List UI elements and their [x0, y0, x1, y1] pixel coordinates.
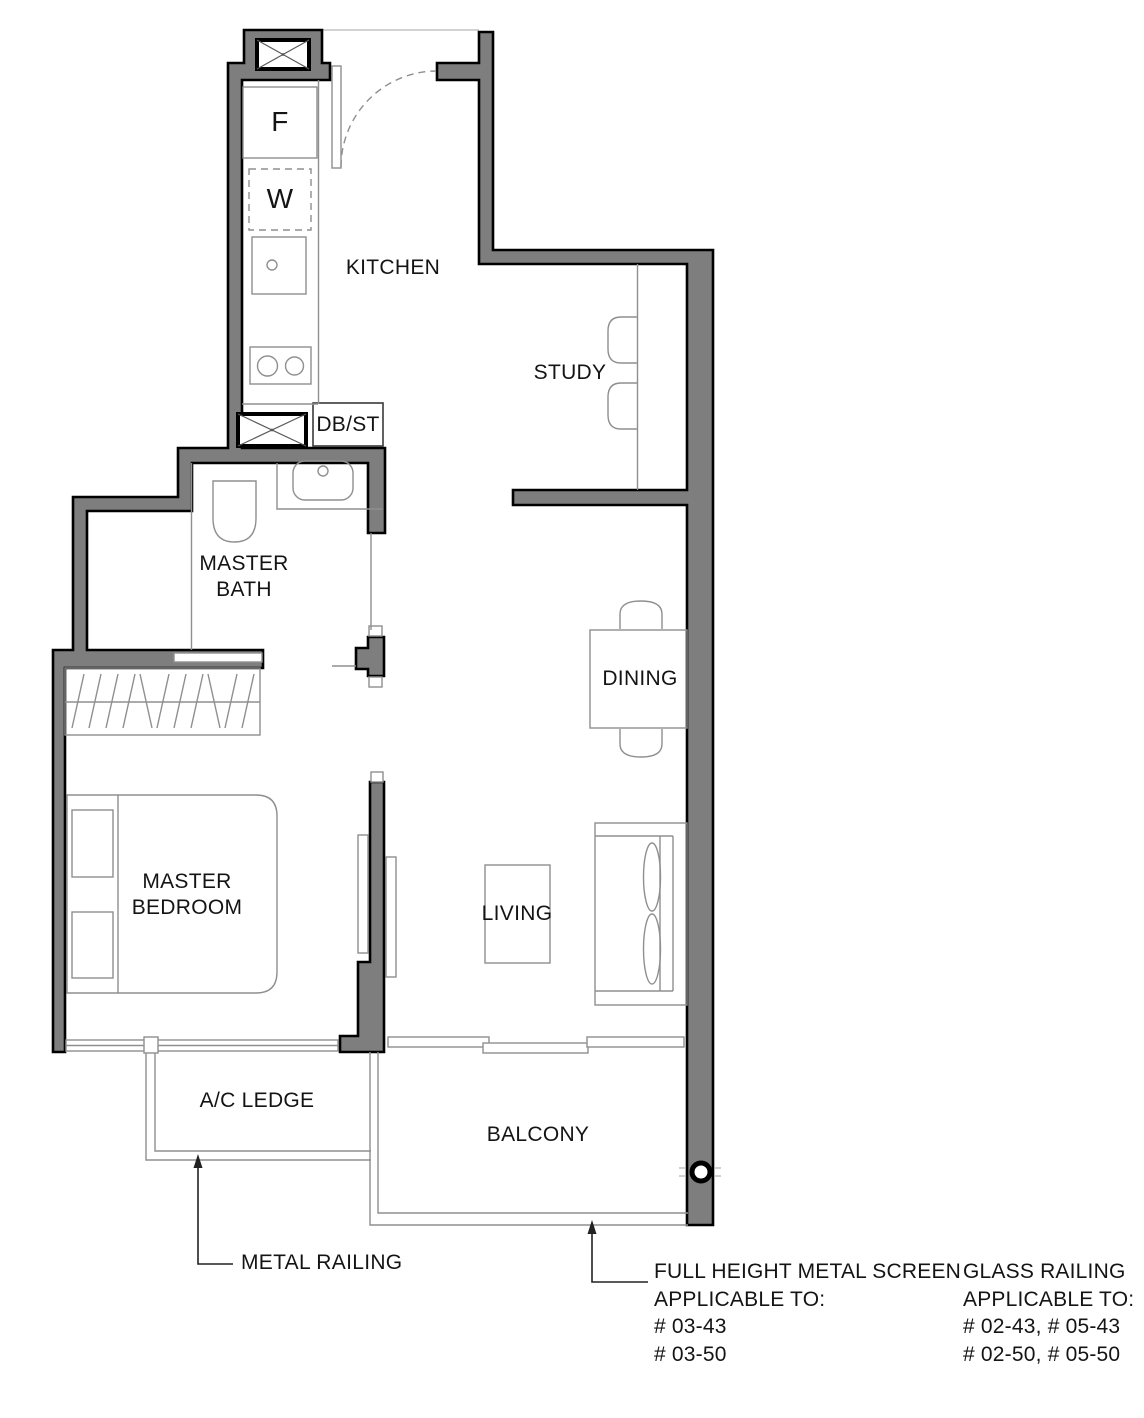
wall-cap [371, 772, 383, 782]
kitchen-sink [252, 237, 306, 294]
room-label-living: LIVING [482, 901, 553, 927]
study-chair [608, 317, 637, 363]
vent-shaft-mid [238, 414, 306, 446]
metal-railing-arrow [194, 1154, 234, 1264]
bedroom-furniture [65, 668, 396, 1053]
dining-chair [620, 601, 662, 629]
metal-screen-arrow [588, 1220, 649, 1282]
room-label-master-bedroom: MASTER BEDROOM [132, 869, 243, 921]
metal-railing-label: METAL RAILING [241, 1250, 402, 1276]
sofa-cushion [644, 843, 661, 911]
glass-railing-note: GLASS RAILING APPLICABLE TO: # 02-43, # … [963, 1258, 1134, 1368]
room-label-master-bath: MASTER BATH [199, 551, 288, 603]
sliding-door-panel [386, 857, 396, 977]
sofa [595, 823, 687, 1005]
entry-door [332, 66, 436, 168]
dining-chair [620, 729, 662, 757]
pillow [72, 810, 113, 877]
db-st-label: DB/ST [316, 412, 379, 438]
door-swing-arc [341, 71, 436, 167]
floor-plan: F W KITCHEN DB/ST STUDY MASTER BATH DINI… [0, 0, 1144, 1418]
full-height-screen-note: FULL HEIGHT METAL SCREEN APPLICABLE TO: … [654, 1258, 961, 1368]
sliding-door-panel [358, 835, 368, 953]
wall-column-marker [679, 1163, 721, 1181]
wall-bath-pier [356, 637, 384, 676]
washer-label: W [267, 186, 294, 212]
room-label-study: STUDY [534, 360, 607, 386]
bedroom-window [66, 1037, 338, 1053]
room-label-ac-ledge: A/C LEDGE [200, 1088, 315, 1114]
room-label-dining: DINING [602, 666, 677, 692]
room-label-balcony: BALCONY [487, 1122, 589, 1148]
bathroom-sink [293, 461, 353, 500]
wardrobe [65, 668, 260, 735]
pocket-door [174, 653, 262, 662]
fridge-label: F [271, 109, 288, 135]
window-mullion [144, 1037, 158, 1053]
door-jamb [369, 677, 382, 687]
study-furniture [608, 264, 638, 490]
pillow [72, 912, 113, 978]
cooktop [250, 347, 311, 384]
sofa-cushion [644, 914, 661, 984]
service-shafts [238, 40, 383, 446]
study-chair [608, 383, 637, 429]
toilet [213, 481, 256, 542]
vent-shaft-top [257, 40, 309, 69]
room-label-kitchen: KITCHEN [346, 255, 440, 281]
balcony-sliding-door [388, 1037, 684, 1053]
floorplan-canvas [0, 0, 1144, 1418]
living-furniture [388, 823, 687, 1053]
